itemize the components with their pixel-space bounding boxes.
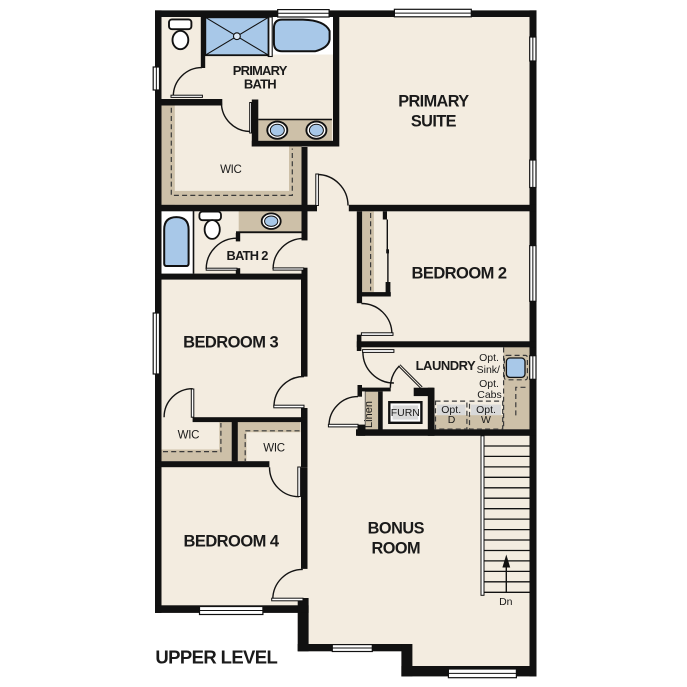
- svg-text:ROOM: ROOM: [371, 540, 420, 558]
- svg-text:BEDROOM 3: BEDROOM 3: [183, 333, 278, 351]
- svg-text:WIC: WIC: [178, 429, 199, 441]
- svg-text:BATH 2: BATH 2: [227, 248, 269, 263]
- svg-text:BATH: BATH: [244, 77, 276, 92]
- svg-text:UPPER LEVEL: UPPER LEVEL: [155, 646, 277, 667]
- svg-text:BEDROOM 4: BEDROOM 4: [184, 533, 280, 551]
- svg-text:BONUS: BONUS: [368, 520, 425, 538]
- svg-text:Cabs: Cabs: [477, 389, 502, 401]
- svg-text:WIC: WIC: [263, 443, 284, 455]
- svg-text:Dn: Dn: [499, 596, 513, 608]
- svg-text:Linen: Linen: [363, 401, 375, 428]
- svg-text:SUITE: SUITE: [411, 113, 457, 131]
- svg-text:WIC: WIC: [220, 164, 241, 176]
- svg-text:PRIMARY: PRIMARY: [398, 93, 469, 111]
- svg-text:LAUNDRY: LAUNDRY: [416, 358, 476, 373]
- svg-text:BEDROOM 2: BEDROOM 2: [412, 265, 507, 283]
- svg-text:D: D: [448, 414, 456, 426]
- svg-text:Sink/: Sink/: [477, 364, 500, 376]
- svg-text:W: W: [481, 414, 491, 426]
- svg-text:FURN: FURN: [391, 407, 420, 419]
- svg-text:Opt.: Opt.: [479, 352, 499, 364]
